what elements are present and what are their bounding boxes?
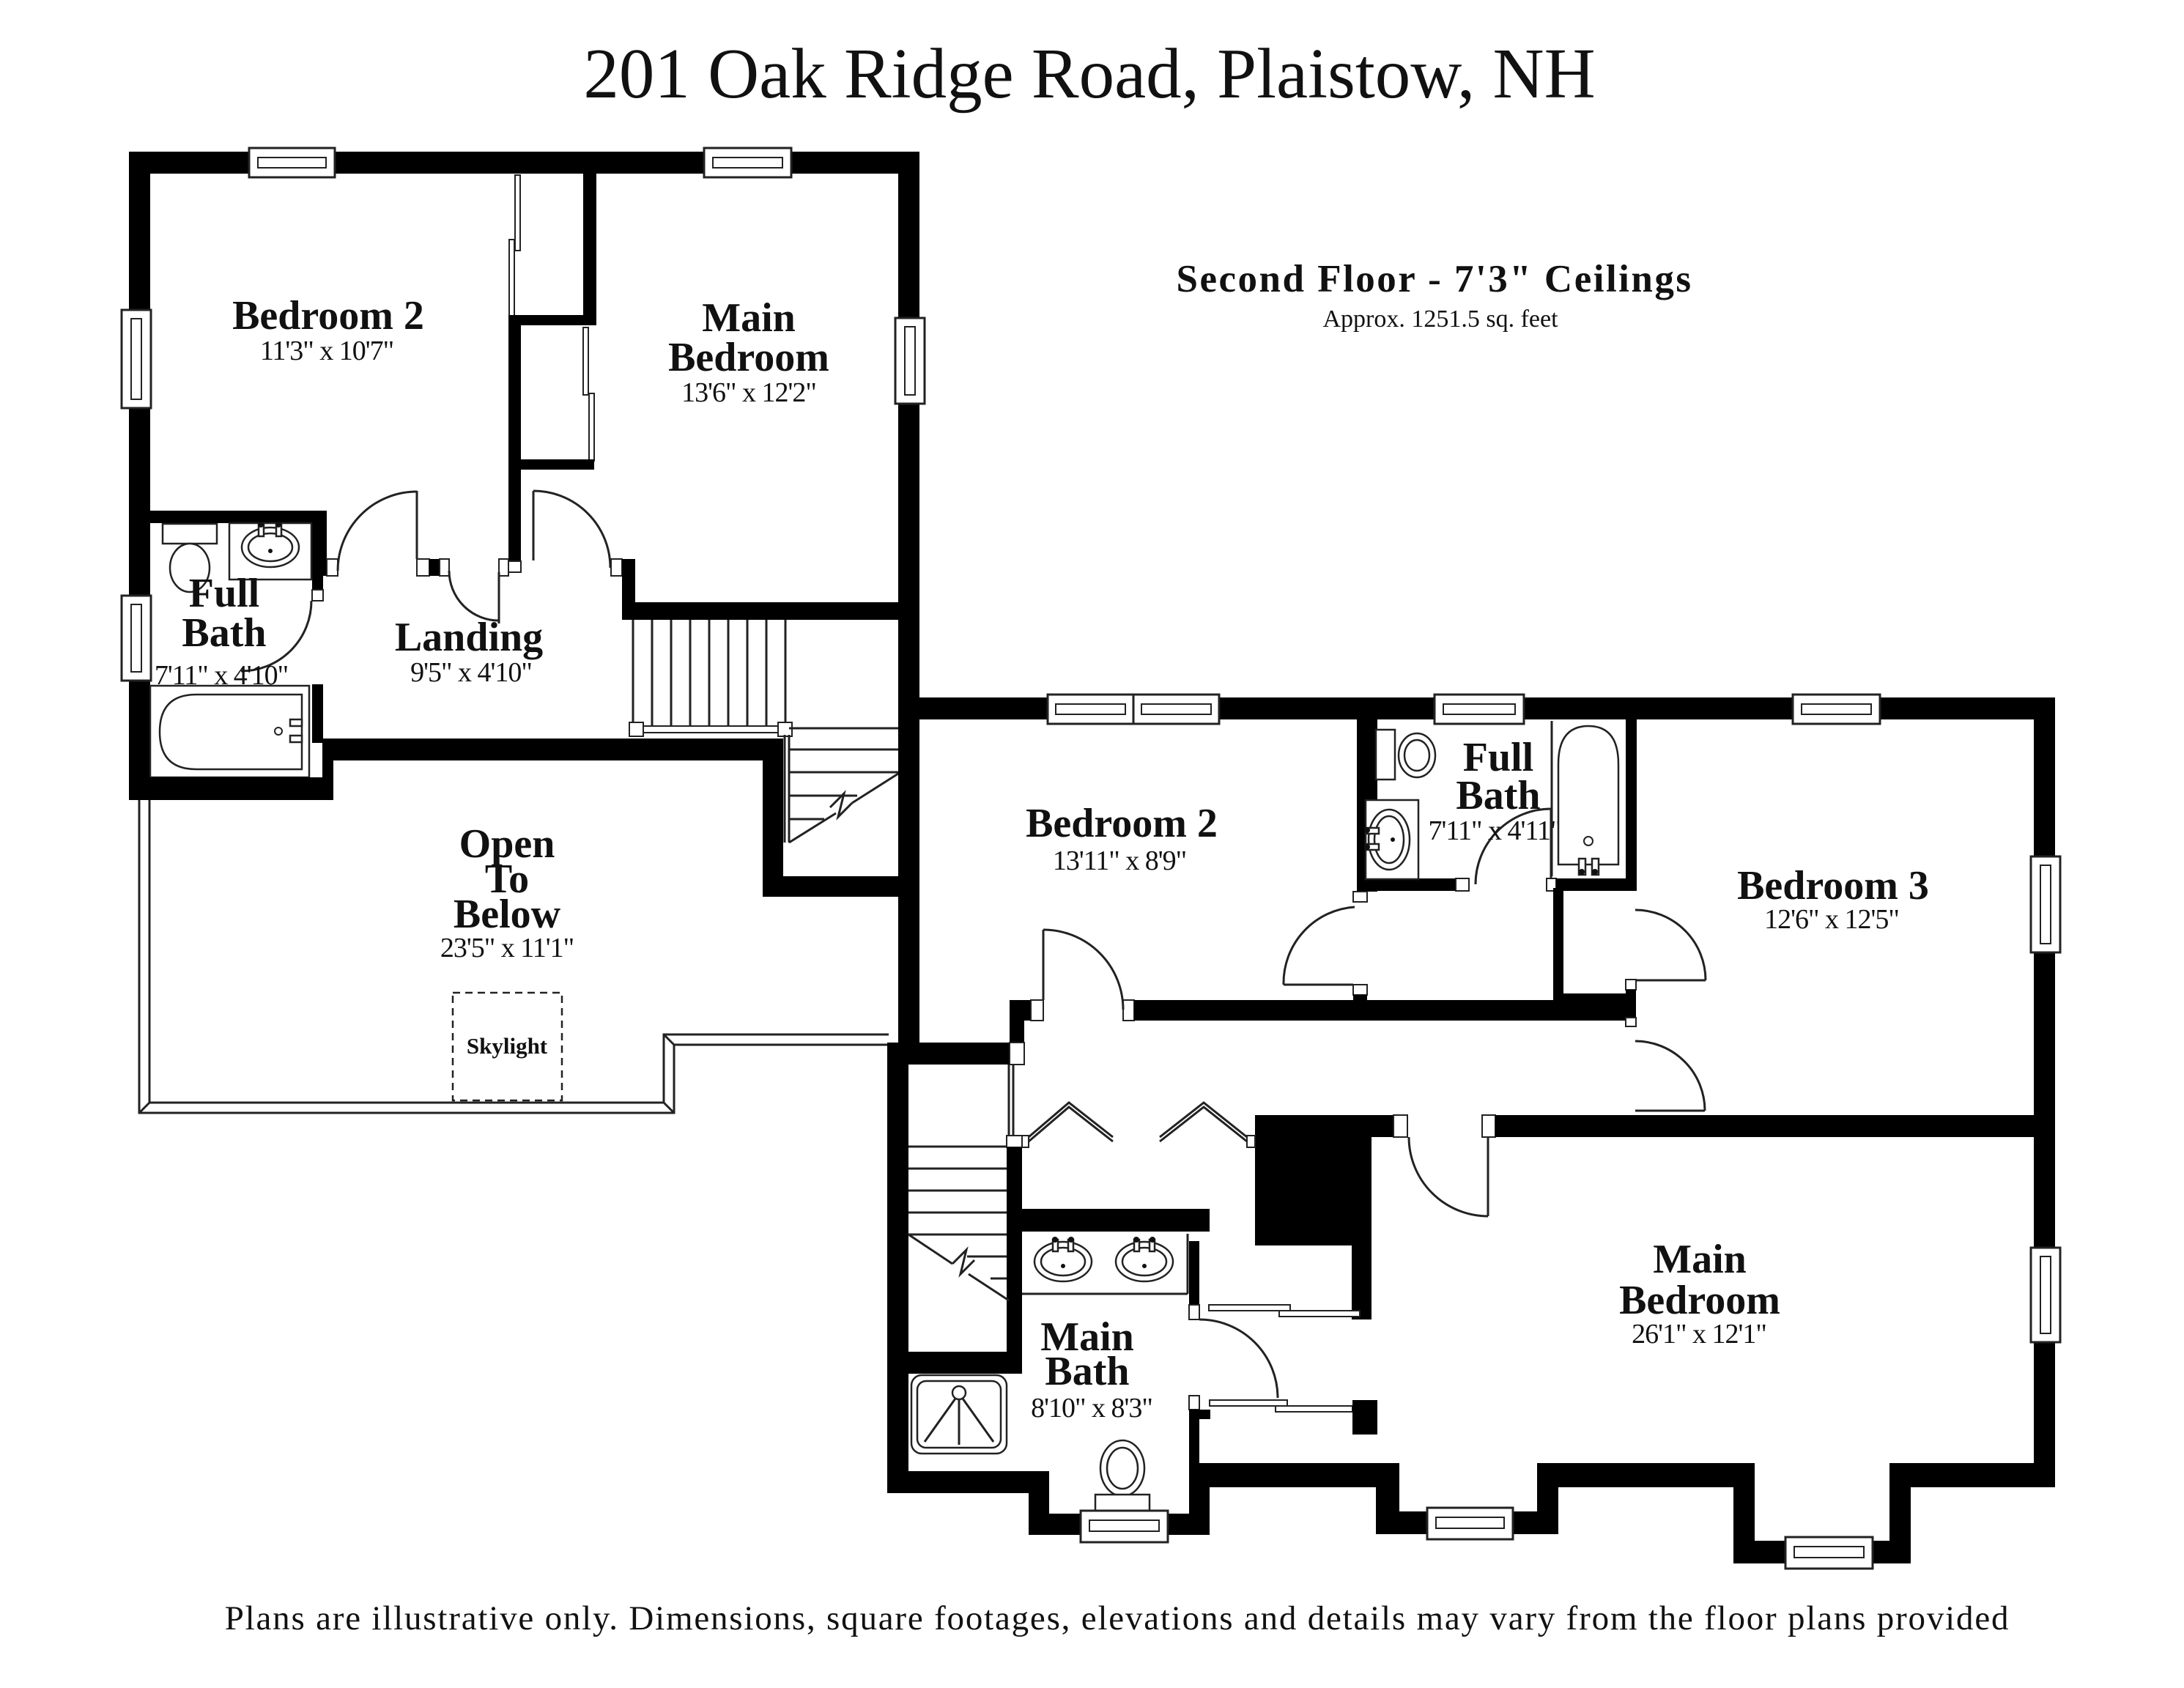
svg-text:23'5" x 11'1": 23'5" x 11'1" xyxy=(440,933,574,963)
svg-text:Bedroom: Bedroom xyxy=(668,335,829,380)
svg-text:9'5" x 4'10": 9'5" x 4'10" xyxy=(410,657,532,688)
svg-text:7'11" x 4'11": 7'11" x 4'11" xyxy=(1429,815,1561,846)
svg-text:8'10" x 8'3": 8'10" x 8'3" xyxy=(1031,1393,1152,1424)
svg-text:Bath: Bath xyxy=(182,610,266,656)
svg-text:Full: Full xyxy=(189,571,259,616)
svg-text:13'11" x 8'9": 13'11" x 8'9" xyxy=(1053,845,1186,876)
svg-text:Approx. 1251.5 sq. feet: Approx. 1251.5 sq. feet xyxy=(1322,306,1558,333)
svg-text:Bath: Bath xyxy=(1045,1349,1129,1394)
svg-text:201 Oak Ridge Road, Plaistow,: 201 Oak Ridge Road, Plaistow, NH xyxy=(583,34,1595,113)
svg-text:Bath: Bath xyxy=(1456,773,1540,818)
svg-text:Second Floor - 7'3" Ceilings: Second Floor - 7'3" Ceilings xyxy=(1176,258,1692,300)
svg-text:Bedroom 3: Bedroom 3 xyxy=(1737,863,1929,908)
svg-text:Bedroom 2: Bedroom 2 xyxy=(232,293,424,338)
svg-text:Main: Main xyxy=(702,295,796,341)
svg-text:Skylight: Skylight xyxy=(467,1033,548,1059)
svg-text:Landing: Landing xyxy=(395,615,543,660)
svg-text:Bedroom 2: Bedroom 2 xyxy=(1026,801,1218,846)
svg-text:26'1" x 12'1": 26'1" x 12'1" xyxy=(1632,1319,1766,1350)
svg-text:Below: Below xyxy=(454,892,561,937)
svg-text:11'3" x 10'7": 11'3" x 10'7" xyxy=(260,336,393,366)
svg-text:12'6" x 12'5": 12'6" x 12'5" xyxy=(1764,904,1899,935)
svg-text:Plans are illustrative only. D: Plans are illustrative only. Dimensions,… xyxy=(225,1599,2010,1637)
svg-text:Bedroom: Bedroom xyxy=(1619,1278,1780,1323)
svg-text:Main: Main xyxy=(1653,1237,1747,1282)
svg-text:13'6" x 12'2": 13'6" x 12'2" xyxy=(681,377,816,408)
